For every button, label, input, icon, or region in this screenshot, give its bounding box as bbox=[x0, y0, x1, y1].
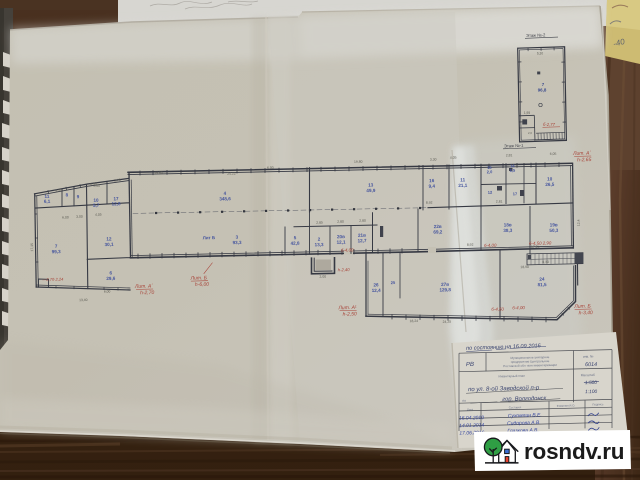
svg-text:Подпись: Подпись bbox=[592, 402, 604, 406]
svg-text:h-6,00: h-6,00 bbox=[195, 282, 210, 288]
svg-text:19в: 19в bbox=[550, 222, 558, 227]
svg-text:8,92: 8,92 bbox=[426, 201, 433, 205]
svg-text:б-4,00: б-4,00 bbox=[341, 247, 354, 252]
svg-text:24,22: 24,22 bbox=[227, 172, 236, 176]
svg-text:2,80: 2,80 bbox=[337, 220, 344, 224]
svg-text:12: 12 bbox=[106, 236, 112, 241]
svg-text:б-4,00: б-4,00 bbox=[512, 305, 525, 310]
svg-text:12,4: 12,4 bbox=[577, 219, 581, 226]
svg-text:5,7: 5,7 bbox=[93, 203, 100, 208]
svg-text:Масштаб: Масштаб bbox=[581, 373, 595, 377]
svg-text:инв. №: инв. № bbox=[583, 354, 594, 358]
svg-text:4,05: 4,05 bbox=[450, 156, 457, 160]
svg-text:38,3: 38,3 bbox=[503, 228, 512, 233]
svg-text:2,81: 2,81 bbox=[506, 153, 513, 157]
svg-text:6,05: 6,05 bbox=[550, 152, 557, 156]
svg-text:б-4,50: б-4,50 bbox=[491, 307, 504, 312]
svg-text:50,3: 50,3 bbox=[549, 228, 558, 233]
svg-text:29,6: 29,6 bbox=[106, 276, 115, 281]
svg-text:2,0: 2,0 bbox=[528, 131, 532, 135]
svg-text:13,3: 13,3 bbox=[315, 242, 324, 247]
svg-text:19,80: 19,80 bbox=[154, 171, 163, 175]
svg-text:19,80: 19,80 bbox=[354, 160, 363, 164]
svg-text:Этаж №-2: Этаж №-2 bbox=[526, 32, 546, 38]
svg-text:8,30: 8,30 bbox=[542, 260, 549, 264]
svg-text:—2,70·2,24: —2,70·2,24 bbox=[41, 276, 64, 282]
svg-text:Фамилия И.О.: Фамилия И.О. bbox=[557, 403, 576, 407]
svg-text:24,25: 24,25 bbox=[443, 320, 452, 324]
svg-text:13: 13 bbox=[368, 182, 374, 187]
svg-text:Этаж №-1: Этаж №-1 bbox=[504, 143, 524, 149]
svg-text:12,4: 12,4 bbox=[372, 288, 381, 293]
svg-text:69,2: 69,2 bbox=[433, 229, 442, 234]
svg-text:2,80: 2,80 bbox=[359, 219, 366, 223]
svg-text:18в: 18в bbox=[504, 222, 512, 227]
svg-text:11: 11 bbox=[460, 177, 465, 182]
svg-text:9,4: 9,4 bbox=[429, 184, 436, 189]
svg-text:РВ: РВ bbox=[466, 362, 474, 368]
svg-text:1:100: 1:100 bbox=[585, 389, 597, 395]
svg-text:3,00: 3,00 bbox=[76, 215, 83, 219]
svg-text:1:500: 1:500 bbox=[585, 380, 597, 386]
svg-text:h-2,65: h-2,65 bbox=[577, 157, 592, 163]
svg-text:42,8: 42,8 bbox=[291, 241, 300, 246]
svg-text:18,24: 18,24 bbox=[410, 319, 419, 323]
svg-text:129,8: 129,8 bbox=[439, 287, 451, 292]
svg-text:6014: 6014 bbox=[585, 362, 597, 368]
svg-text:16.04.2010: 16.04.2010 bbox=[459, 415, 484, 422]
svg-text:3,30: 3,30 bbox=[430, 158, 437, 162]
svg-text:rosndv.ru: rosndv.ru bbox=[524, 439, 624, 464]
svg-text:h-2,50: h-2,50 bbox=[343, 311, 358, 317]
svg-text:49,9: 49,9 bbox=[366, 188, 375, 193]
svg-text:99,3: 99,3 bbox=[52, 249, 61, 254]
svg-text:27в: 27в bbox=[441, 282, 449, 287]
svg-text:12,7: 12,7 bbox=[357, 238, 366, 243]
svg-text:18,90: 18,90 bbox=[520, 265, 529, 269]
svg-text:8,5: 8,5 bbox=[510, 168, 516, 173]
svg-text:16: 16 bbox=[429, 178, 435, 183]
svg-text:10: 10 bbox=[547, 176, 553, 181]
svg-text:2,85: 2,85 bbox=[316, 221, 323, 225]
svg-text:93,3: 93,3 bbox=[232, 240, 241, 245]
svg-text:6,00: 6,00 bbox=[93, 184, 100, 188]
svg-text:по: по bbox=[462, 399, 466, 403]
svg-text:Сухомлин В.Е.: Сухомлин В.Е. bbox=[508, 412, 542, 419]
svg-text:21,1: 21,1 bbox=[458, 183, 467, 188]
svg-text:14.01.2014: 14.01.2014 bbox=[459, 422, 484, 429]
svg-text:26: 26 bbox=[373, 282, 379, 287]
svg-text:2,81: 2,81 bbox=[496, 200, 503, 204]
svg-text:Лит Б: Лит Б bbox=[203, 235, 215, 240]
svg-text:гор. Волгодонск: гор. Волгодонск bbox=[502, 396, 546, 403]
svg-text:12,1: 12,1 bbox=[337, 240, 346, 245]
svg-text:24: 24 bbox=[539, 277, 545, 282]
svg-text:6,00: 6,00 bbox=[267, 166, 274, 170]
svg-text:h-2,40: h-2,40 bbox=[338, 267, 351, 272]
svg-text:1,95: 1,95 bbox=[524, 111, 530, 115]
svg-text:22в: 22в bbox=[434, 224, 442, 229]
svg-text:17,35: 17,35 bbox=[30, 243, 34, 252]
svg-text:h-2,70: h-2,70 bbox=[140, 290, 155, 296]
svg-text:8,92: 8,92 bbox=[467, 243, 474, 247]
svg-text:348,6: 348,6 bbox=[219, 196, 231, 201]
svg-text:6,1: 6,1 bbox=[44, 199, 51, 204]
svg-text:6,00: 6,00 bbox=[62, 215, 69, 219]
svg-text:21в: 21в bbox=[358, 233, 366, 238]
svg-text:6,00: 6,00 bbox=[104, 289, 111, 293]
svg-text:Инвентарный план: Инвентарный план bbox=[498, 374, 525, 379]
svg-text:6,30: 6,30 bbox=[537, 52, 543, 56]
svg-text:h-3,40: h-3,40 bbox=[579, 310, 594, 316]
svg-text:12,8: 12,8 bbox=[112, 201, 121, 206]
svg-text:96,8: 96,8 bbox=[538, 88, 547, 93]
svg-text:81,5: 81,5 bbox=[538, 282, 547, 287]
svg-text:30,1: 30,1 bbox=[105, 242, 114, 247]
svg-text:2,0: 2,0 bbox=[487, 169, 493, 174]
svg-text:26,5: 26,5 bbox=[545, 182, 554, 187]
svg-text:4,05: 4,05 bbox=[95, 213, 102, 217]
svg-text:13,40: 13,40 bbox=[79, 298, 88, 302]
svg-text:Дата: Дата bbox=[467, 407, 474, 411]
svg-text:Составил: Составил bbox=[509, 405, 522, 409]
svg-text:20в: 20в bbox=[337, 234, 345, 239]
svg-text:б-4,00: б-4,00 bbox=[484, 243, 497, 248]
svg-text:17,2в: 17,2в bbox=[531, 245, 540, 249]
svg-text:Сидорова А.В.: Сидорова А.В. bbox=[507, 420, 541, 427]
svg-text:2,00: 2,00 bbox=[319, 275, 326, 279]
svg-text:б-2,77: б-2,77 bbox=[543, 122, 556, 127]
